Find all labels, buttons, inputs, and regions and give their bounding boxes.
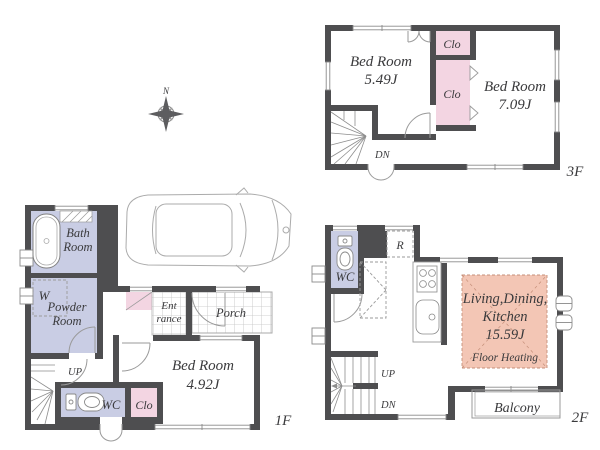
refrigerator-label: R	[395, 238, 404, 252]
toilet-icon-2f	[337, 236, 353, 270]
floor2-plan: WC R Living,Dining, Kitchen 15.59J Floor…	[312, 225, 589, 426]
compass-north-label: N	[162, 86, 170, 96]
stairs-up-label-1f: UP	[68, 367, 83, 378]
bathtub-icon	[33, 214, 60, 268]
wc-label-2f: WC	[336, 270, 355, 284]
toilet-icon-1f	[66, 393, 104, 411]
closet-label-1f: Clo	[135, 398, 152, 412]
entrance-label-line1: Ent	[160, 300, 177, 312]
stairs-up-label-2f: UP	[381, 369, 396, 380]
bedroom-right-size-3f: 7.09J	[499, 97, 533, 113]
closet-top-label-3f: Clo	[443, 37, 460, 51]
floor1-plan: Bath Room W Powder Room Ent rance Porch …	[20, 188, 292, 441]
bedroom-size-1f: 4.92J	[187, 377, 221, 393]
entrance-label-line2: rance	[156, 313, 181, 325]
closet-slider-icons-3f	[470, 66, 478, 120]
stairs-down-label-3f: DN	[374, 150, 391, 161]
bath-label-line2: Room	[62, 240, 92, 254]
bath-counter-icon	[60, 211, 92, 222]
closet-mid-label-3f: Clo	[443, 87, 460, 101]
floor1-label: 1F	[275, 413, 293, 429]
bedroom-left-name-3f: Bed Room	[350, 54, 412, 70]
bedroom-left-size-3f: 5.49J	[365, 72, 399, 88]
bedroom-right-name-3f: Bed Room	[484, 79, 546, 95]
kitchen-counter-icon	[413, 262, 441, 342]
floor3-label: 3F	[566, 164, 585, 180]
car-icon	[126, 188, 291, 272]
bath-label-line1: Bath	[66, 226, 90, 240]
powder-label-line1: Powder	[47, 300, 87, 314]
ldk-size-label: 15.59J	[485, 327, 525, 343]
balcony-label: Balcony	[494, 401, 541, 416]
stairs-3f	[331, 111, 366, 164]
floor-heating-label: Floor Heating	[471, 352, 538, 364]
stairs-down-label-2f: DN	[380, 400, 397, 411]
floor-plan-drawing: N	[0, 0, 600, 450]
ldk-label-line2: Kitchen	[481, 309, 527, 325]
stairs-1f	[31, 365, 55, 424]
floor3-plan: Bed Room 5.49J Bed Room 7.09J Clo Clo DN…	[325, 25, 584, 180]
doors-2f	[334, 294, 362, 322]
floor2-label: 2F	[572, 410, 590, 426]
powder-label-line2: Room	[51, 314, 81, 328]
compass-rose-icon: N	[148, 86, 184, 132]
porch-label: Porch	[215, 306, 246, 320]
bedroom-name-1f: Bed Room	[172, 358, 234, 374]
floor-plan-page: N	[0, 0, 600, 450]
wc-label-1f: WC	[102, 398, 121, 412]
ldk-label-line1: Living,Dining,	[462, 291, 548, 307]
